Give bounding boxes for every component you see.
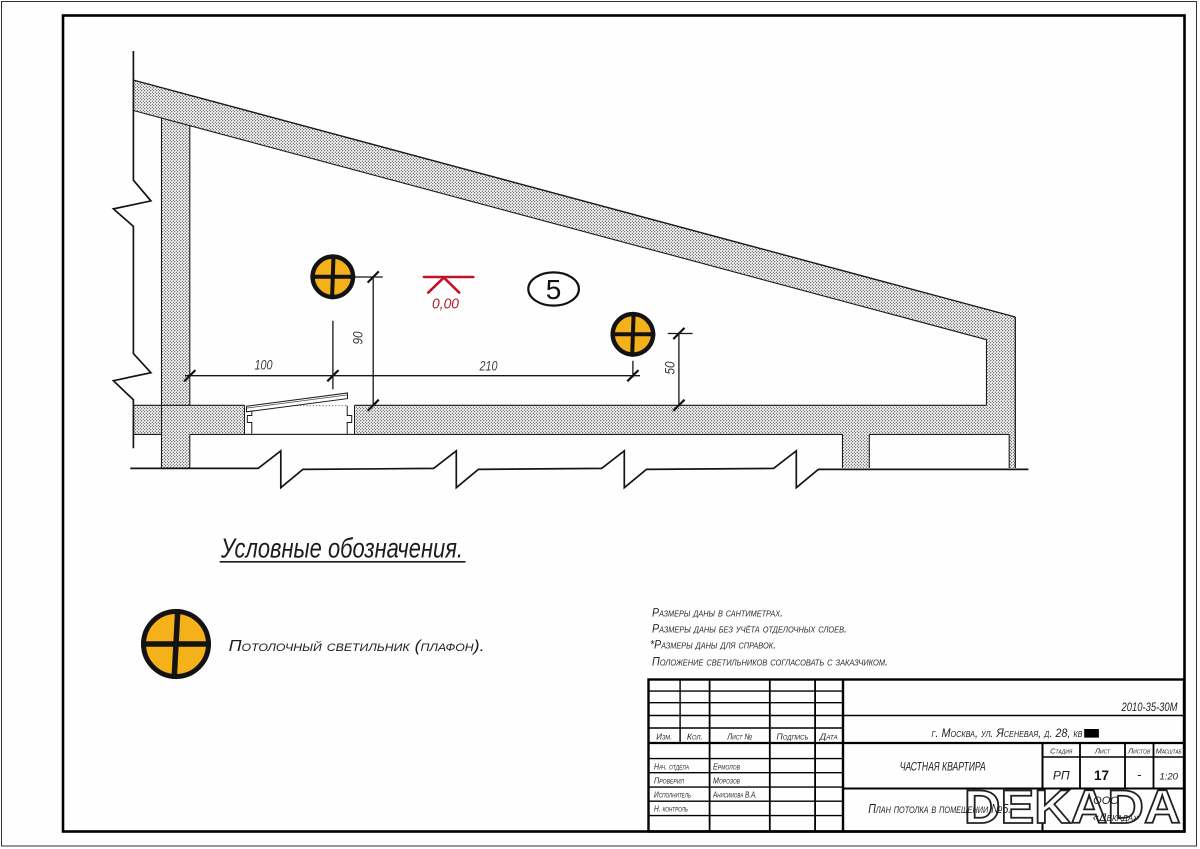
svg-text:0,00: 0,00 <box>432 297 459 313</box>
svg-text:Нач. отдела: Нач. отдела <box>654 761 689 771</box>
svg-text:Изм.: Изм. <box>656 731 672 741</box>
svg-text:5: 5 <box>546 274 562 305</box>
svg-text:Размеры даны без учёта отделоч: Размеры даны без учёта отделочных слоев. <box>652 623 847 635</box>
svg-text:Потолочный светильник (плафон): Потолочный светильник (плафон). <box>229 638 485 655</box>
svg-text:Лист №: Лист № <box>726 731 752 741</box>
svg-text:Анисимова В.А.: Анисимова В.А. <box>712 790 757 800</box>
svg-text:Исполнитель: Исполнитель <box>654 790 691 800</box>
svg-text:Лист: Лист <box>1094 746 1111 755</box>
svg-text:Листов: Листов <box>1127 746 1151 755</box>
svg-text:2010-35-30М: 2010-35-30М <box>1121 702 1178 714</box>
svg-text:Размеры даны в сантиметрах.: Размеры даны в сантиметрах. <box>652 607 783 619</box>
svg-text:«Декада»: «Декада» <box>1093 812 1139 824</box>
svg-text:Проверил: Проверил <box>654 775 685 785</box>
svg-text:ЧАСТНАЯ КВАРТИРА: ЧАСТНАЯ КВАРТИРА <box>900 762 986 774</box>
svg-text:Масштаб: Масштаб <box>1156 746 1183 755</box>
svg-text:Ермолов: Ермолов <box>713 761 740 771</box>
svg-text:Условные обозначения.: Условные обозначения. <box>220 533 463 564</box>
svg-text:50: 50 <box>662 361 678 374</box>
svg-text:210: 210 <box>479 358 498 374</box>
svg-text:Н. контроль: Н. контроль <box>654 804 688 814</box>
svg-text:План потолка в помещении №5.: План потолка в помещении №5. <box>868 801 1011 816</box>
svg-text:Морозов: Морозов <box>713 775 740 785</box>
svg-text:Стадия: Стадия <box>1050 746 1073 755</box>
svg-text:Дата: Дата <box>819 731 838 741</box>
svg-text:*Размеры даны для справок.: *Размеры даны для справок. <box>650 639 776 651</box>
svg-text:Положение светильников согласо: Положение светильников согласовать с зак… <box>652 657 888 669</box>
svg-text:Кол.: Кол. <box>687 731 703 741</box>
svg-text:100: 100 <box>255 357 273 373</box>
svg-text:90: 90 <box>350 331 366 344</box>
svg-text:г. Москва, ул. Ясеневая, д. 28: г. Москва, ул. Ясеневая, д. 28, кв <box>932 726 1084 740</box>
svg-text:ООО: ООО <box>1093 795 1119 807</box>
svg-text:Подпись: Подпись <box>777 731 809 741</box>
